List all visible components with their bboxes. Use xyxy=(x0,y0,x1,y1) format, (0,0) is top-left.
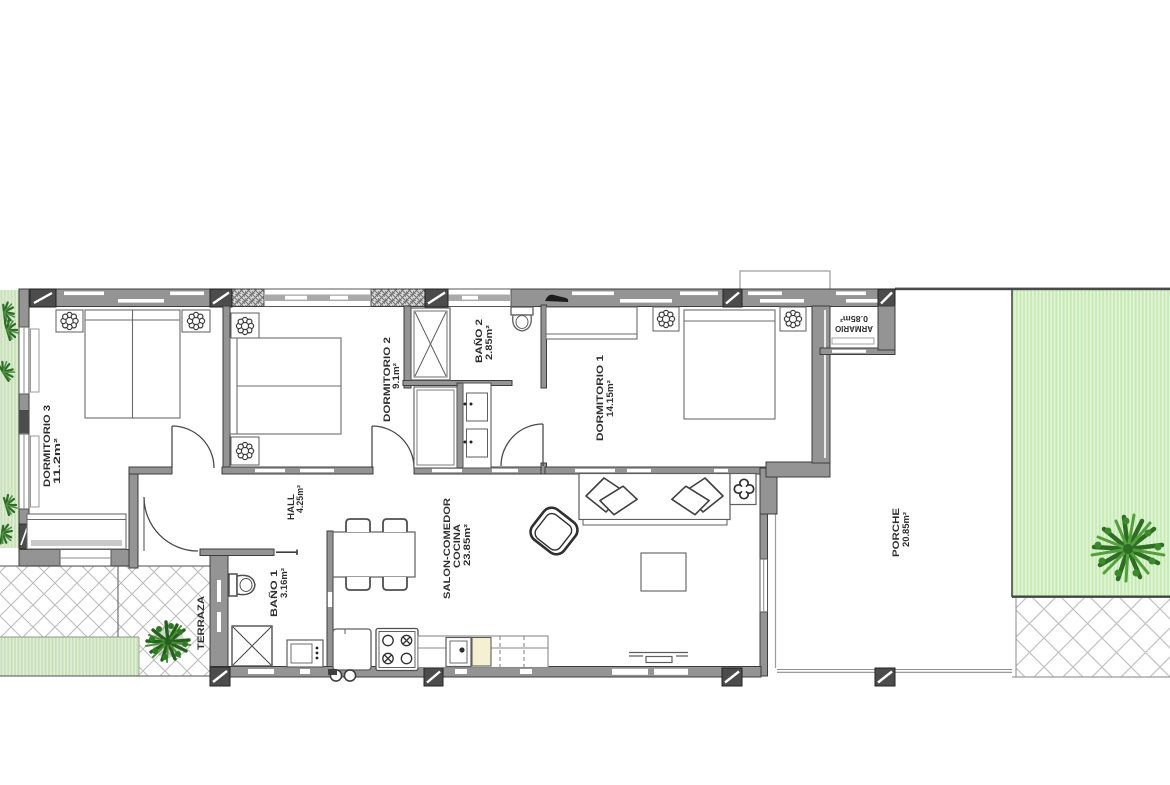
svg-text:11.2m²: 11.2m² xyxy=(52,438,62,484)
svg-text:4.25m²: 4.25m² xyxy=(295,485,305,513)
svg-text:2.85m²: 2.85m² xyxy=(484,325,494,360)
svg-text:TERRAZA: TERRAZA xyxy=(196,596,207,650)
svg-text:9.1m²: 9.1m² xyxy=(391,363,401,389)
svg-text:20.85m²: 20.85m² xyxy=(901,512,911,547)
svg-text:ARMARIO: ARMARIO xyxy=(835,324,873,334)
svg-text:14.15m²: 14.15m² xyxy=(605,380,615,417)
svg-text:23.85m²: 23.85m² xyxy=(462,524,472,566)
svg-text:0.85m²: 0.85m² xyxy=(840,314,868,323)
svg-text:3.16m²: 3.16m² xyxy=(279,568,289,598)
